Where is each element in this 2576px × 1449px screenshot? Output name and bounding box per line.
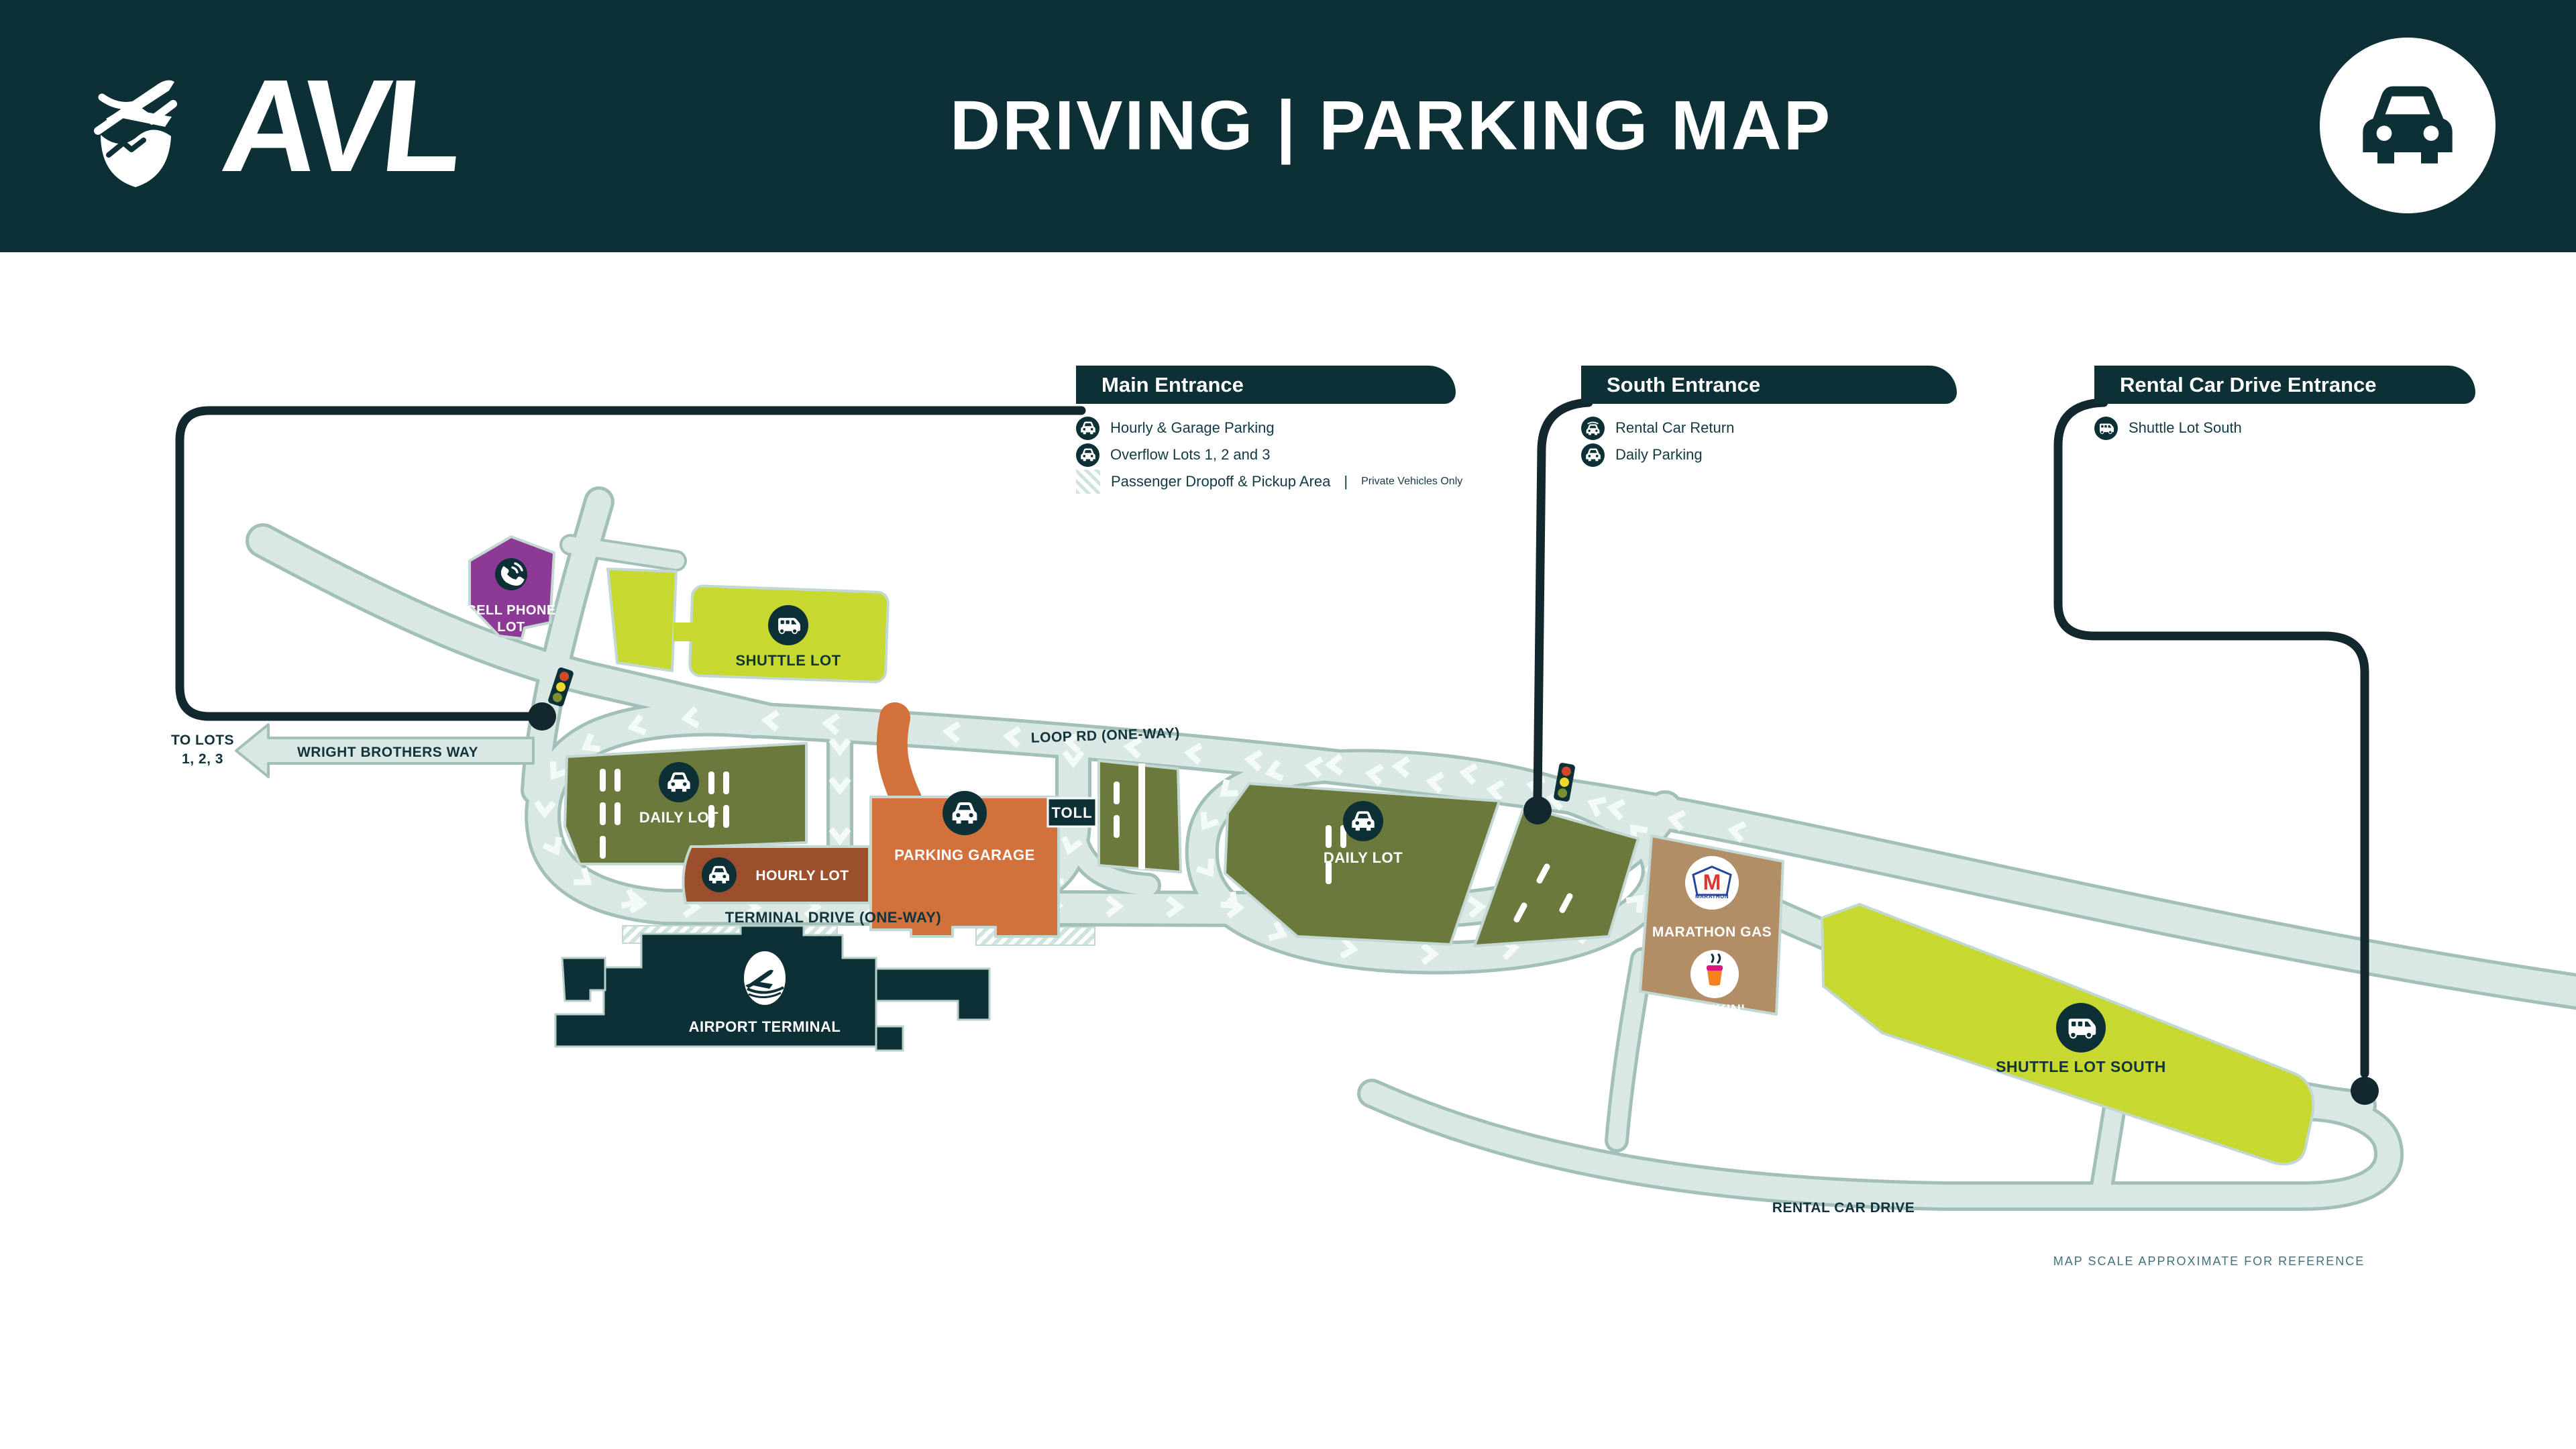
hourly-lot-icon <box>702 857 737 892</box>
rental-entrance-route-end <box>2351 1077 2379 1105</box>
wright-brothers-label: WRIGHT BROTHERS WAY <box>297 745 478 760</box>
car-icon <box>1076 443 1099 467</box>
plane-icon <box>744 951 786 1005</box>
toll-sign: TOLL <box>1048 798 1096 826</box>
garage-ramp <box>892 718 907 801</box>
cell-phone-lot-icon <box>495 558 527 590</box>
shuttle-lot-south-label: SHUTTLE LOT SOUTH <box>1996 1058 2166 1075</box>
page: AVL DRIVING | PARKING MAP Main Entrance … <box>0 0 2576 1449</box>
rental-entrance-title: Rental Car Drive Entrance <box>2094 366 2475 404</box>
legend-item: Overflow Lots 1, 2 and 3 <box>1076 441 1505 468</box>
shuttle-lot-neck <box>674 623 694 641</box>
hourly-lot-label: HOURLY LOT <box>755 868 849 883</box>
shuttle-lot-label: SHUTTLE LOT <box>735 652 841 669</box>
dunkin-label: DUNKIN' <box>1684 1002 1745 1018</box>
car-icon <box>1581 443 1605 467</box>
cell-phone-lot-label: CELL PHONE <box>466 603 556 618</box>
shuttle-lot-west-section <box>608 569 676 671</box>
marathon-icon: M MARATHON <box>1685 856 1739 910</box>
legend-item: Daily Parking <box>1581 441 1984 468</box>
car-badge <box>2320 38 2495 213</box>
daily-lot-west-icon <box>659 762 699 802</box>
map-scale-note: MAP SCALE APPROXIMATE FOR REFERENCE <box>2053 1254 2365 1268</box>
daily-lot-west-label: DAILY LOT <box>639 809 718 826</box>
svg-text:1, 2, 3: 1, 2, 3 <box>182 751 223 767</box>
main-entrance-callout: Main Entrance Hourly & Garage Parking Ov… <box>1076 366 1505 495</box>
shuttle-lot-south-icon <box>2056 1003 2106 1053</box>
south-entrance-callout: South Entrance Rental Car Return Daily P… <box>1581 366 1984 468</box>
main-entrance-title: Main Entrance <box>1076 366 1456 404</box>
car-icon <box>1076 417 1099 440</box>
parking-garage-label: PARKING GARAGE <box>894 847 1035 863</box>
svg-text:MARATHON: MARATHON <box>1695 894 1729 900</box>
shuttle-lot-icon <box>768 605 808 645</box>
strip-divider <box>1138 763 1145 869</box>
rental-entrance-route <box>2058 402 2365 1073</box>
avl-logo: AVL <box>94 52 456 200</box>
airport-terminal: AIRPORT TERMINAL <box>555 926 989 1051</box>
terminal-drive-label: TERMINAL DRIVE (ONE-WAY) <box>725 909 941 926</box>
south-entrance-route-end <box>1523 796 1552 824</box>
legend-item: Rental Car Return <box>1581 415 1984 441</box>
main-entrance-route-end <box>528 702 556 731</box>
daily-lot-east-icon <box>1343 801 1383 841</box>
south-entrance-title: South Entrance <box>1581 366 1957 404</box>
shuttle-icon <box>2094 417 2118 440</box>
svg-text:TOLL: TOLL <box>1051 804 1092 821</box>
legend-item: Shuttle Lot South <box>2094 415 2497 441</box>
daily-lot-east-label: DAILY LOT <box>1324 849 1403 866</box>
car-icon <box>2354 72 2461 179</box>
header-bar: AVL DRIVING | PARKING MAP <box>0 0 2576 252</box>
page-title: DRIVING | PARKING MAP <box>950 87 1832 166</box>
legend-item: Hourly & Garage Parking <box>1076 415 1505 441</box>
parking-garage-icon <box>943 791 987 835</box>
to-lots-label: TO LOTS <box>171 733 234 748</box>
avl-badge-icon <box>94 56 211 197</box>
rental-entrance-callout: Rental Car Drive Entrance Shuttle Lot So… <box>2094 366 2497 441</box>
marathon-label: MARATHON GAS <box>1652 924 1772 940</box>
avl-logo-text: AVL <box>217 60 464 192</box>
airport-terminal-label: AIRPORT TERMINAL <box>689 1018 841 1035</box>
svg-text:LOT: LOT <box>497 620 525 635</box>
legend-item: Passenger Dropoff & Pickup Area|Private … <box>1076 468 1505 495</box>
stripes-swatch-icon <box>1076 470 1100 494</box>
svg-text:M: M <box>1703 870 1721 894</box>
dunkin-icon <box>1690 950 1739 998</box>
rental-car-drive-label: RENTAL CAR DRIVE <box>1772 1200 1915 1216</box>
rental-return-icon <box>1581 417 1605 440</box>
